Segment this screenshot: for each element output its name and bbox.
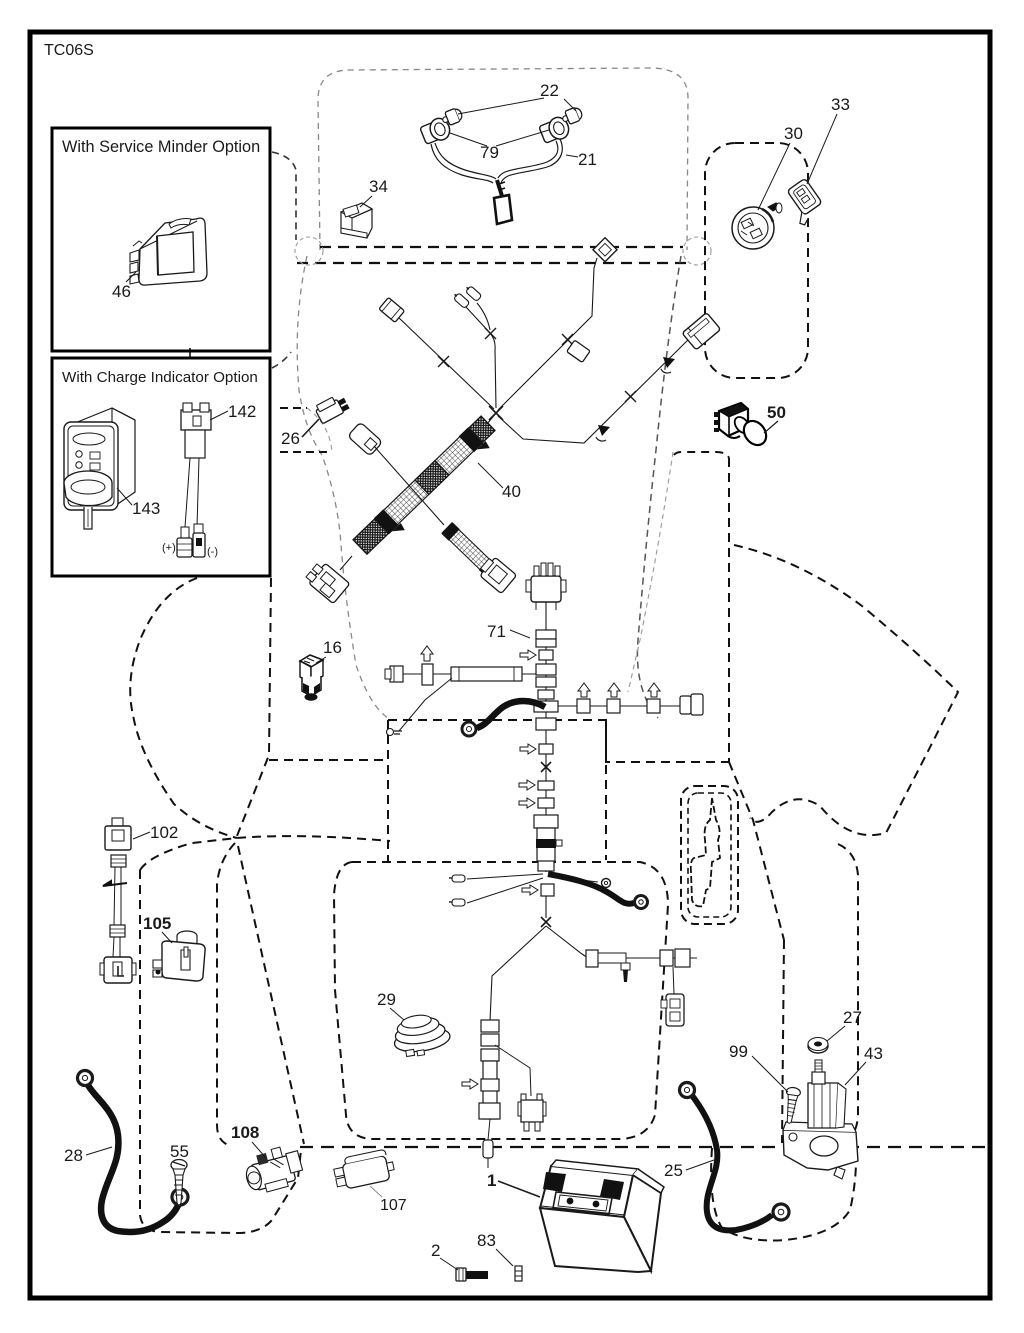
svg-text:107: 107 xyxy=(380,1197,407,1214)
svg-text:142: 142 xyxy=(228,402,256,421)
svg-text:1: 1 xyxy=(487,1171,496,1190)
svg-text:28: 28 xyxy=(64,1146,83,1165)
svg-text:105: 105 xyxy=(143,914,171,933)
svg-text:TC06S: TC06S xyxy=(44,42,94,59)
svg-text:22: 22 xyxy=(540,81,559,100)
svg-text:34: 34 xyxy=(369,177,388,196)
svg-text:108: 108 xyxy=(231,1123,259,1142)
svg-text:83: 83 xyxy=(477,1231,496,1250)
svg-text:102: 102 xyxy=(150,823,178,842)
svg-text:143: 143 xyxy=(132,499,160,518)
svg-text:26: 26 xyxy=(281,429,300,448)
svg-text:33: 33 xyxy=(831,95,850,114)
svg-text:21: 21 xyxy=(578,150,597,169)
svg-text:99: 99 xyxy=(729,1042,748,1061)
svg-text:With Service Minder Option: With Service Minder Option xyxy=(62,138,260,156)
svg-text:40: 40 xyxy=(502,482,521,501)
svg-text:27: 27 xyxy=(843,1008,862,1027)
svg-text:43: 43 xyxy=(864,1044,883,1063)
svg-text:16: 16 xyxy=(323,638,342,657)
svg-text:30: 30 xyxy=(784,124,803,143)
svg-text:55: 55 xyxy=(170,1142,189,1161)
svg-text:29: 29 xyxy=(377,990,396,1009)
svg-text:(+): (+) xyxy=(162,542,176,554)
svg-text:50: 50 xyxy=(767,403,786,422)
svg-text:46: 46 xyxy=(112,282,131,301)
svg-text:(-): (-) xyxy=(207,546,218,558)
svg-text:2: 2 xyxy=(431,1241,440,1260)
svg-text:71: 71 xyxy=(487,622,506,641)
svg-text:25: 25 xyxy=(664,1161,683,1180)
svg-text:With Charge Indicator Option: With Charge Indicator Option xyxy=(62,369,258,386)
